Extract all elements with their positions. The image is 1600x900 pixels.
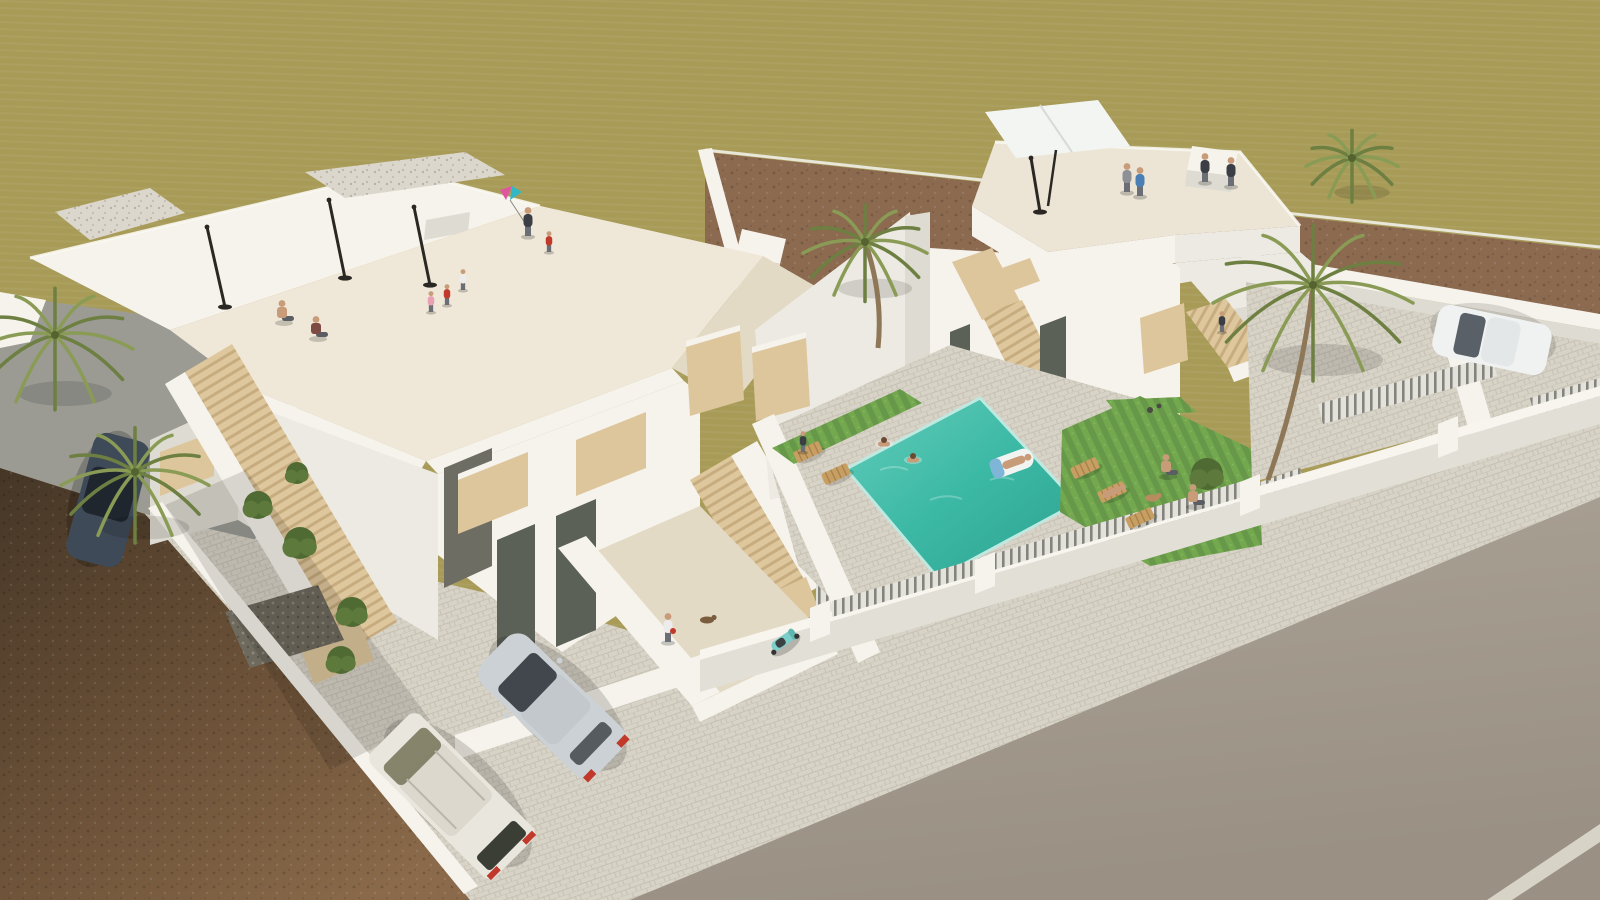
render-viewport [0, 0, 1600, 900]
garden-chair [1157, 404, 1162, 409]
garden-table [1147, 407, 1153, 413]
scene-svg [0, 0, 1600, 900]
